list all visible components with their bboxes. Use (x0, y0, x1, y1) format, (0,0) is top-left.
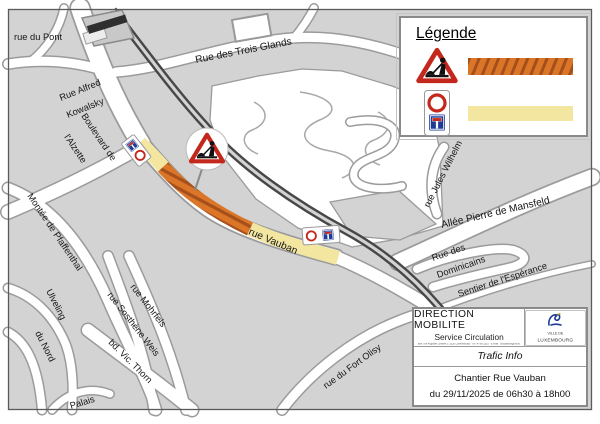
info-header: DIRECTION MOBILITE Service Circulation 9… (414, 309, 586, 346)
notice-body: Chantier Rue Vauban du 29/11/2025 de 06h… (414, 366, 586, 405)
dead-end-icon (322, 229, 334, 241)
legend-row-construction (401, 47, 586, 85)
legend-swatch-construction (468, 58, 573, 75)
no-entry-icon (306, 231, 316, 241)
service-subtitle: Service Circulation (435, 332, 504, 342)
roadwork-sign-icon (414, 47, 460, 85)
notice-line1: Chantier Rue Vauban (454, 373, 546, 384)
legend-row-closed (401, 90, 586, 136)
traffic-info-map-page: rue du Pont Rue des Trois Glands Rue Alf… (0, 0, 600, 424)
trafic-info-label: Trafic Info (414, 346, 586, 366)
lion-icon (546, 312, 566, 327)
direction-title: DIRECTION MOBILITE (414, 309, 524, 331)
street-label-rue-du-pont: rue du Pont (14, 32, 62, 42)
sign-plaque-east (302, 225, 340, 245)
legend-title: Légende (416, 25, 586, 43)
address-line: 98A, rue Auguste Charles L-1326 Luxembou… (418, 343, 520, 346)
legend-box: Légende (399, 16, 588, 137)
notice-line2: du 29/11/2025 de 06h30 à 18h00 (430, 389, 571, 400)
info-header-text: DIRECTION MOBILITE Service Circulation 9… (414, 309, 524, 346)
city-logo: VILLE DE LUXEMBOURG (524, 309, 586, 346)
no-entry-dead-end-icon (414, 90, 460, 136)
legend-swatch-closed (468, 106, 573, 121)
city-logo-box: VILLE DE LUXEMBOURG (525, 310, 586, 346)
traffic-info-box: DIRECTION MOBILITE Service Circulation 9… (412, 307, 588, 407)
logo-luxembourg: LUXEMBOURG (538, 338, 574, 343)
logo-ville-de: VILLE DE (540, 332, 572, 336)
